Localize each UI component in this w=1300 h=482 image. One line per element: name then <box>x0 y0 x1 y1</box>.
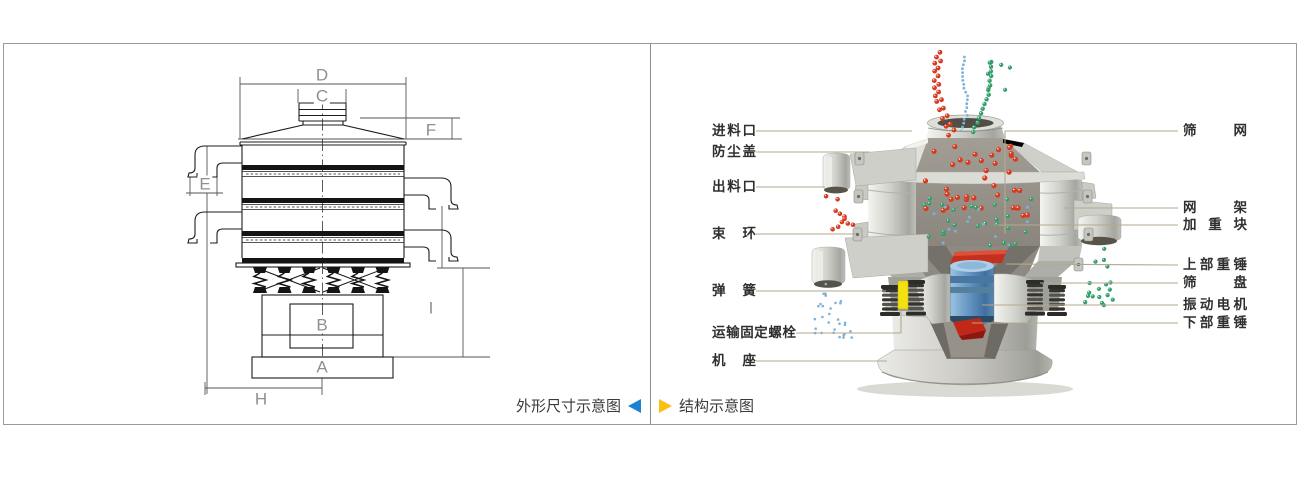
label-vibration-motor: 振动电机 <box>1183 297 1247 313</box>
dim-label-d: D <box>314 67 330 84</box>
dim-label-e: E <box>197 176 212 193</box>
feed-inlet-collar <box>926 115 1005 138</box>
dim-label-i: I <box>427 300 436 317</box>
springs-drawing <box>253 267 390 293</box>
dim-label-h: H <box>253 391 269 408</box>
clamp-bands <box>242 165 404 263</box>
machine-illustration <box>812 115 1121 397</box>
dim-label-f: F <box>424 122 438 139</box>
label-dust-cover: 防尘盖 <box>712 144 756 160</box>
transport-bolt-highlight <box>898 281 908 309</box>
dim-label-c: C <box>314 88 330 105</box>
dim-label-a: A <box>314 359 329 376</box>
vibration-motor <box>949 260 995 325</box>
label-feed-inlet: 进料口 <box>712 123 756 139</box>
label-sieve-tray: 筛盘 <box>1183 275 1247 291</box>
right-duct <box>1074 200 1121 245</box>
screenshot-root: D C F E B A H I 进料口 防尘盖 出料口 束环 弹簧 运输固定螺栓… <box>0 0 1300 482</box>
caption-left-panel: 外形尺寸示意图 <box>516 397 641 414</box>
caption-right-text: 结构示意图 <box>679 395 754 416</box>
label-machine-base: 机座 <box>712 353 756 369</box>
machine-outline <box>188 103 458 378</box>
label-weight-block: 加重块 <box>1183 217 1247 233</box>
right-arrow-icon <box>659 399 672 413</box>
label-lower-hammer: 下部重锤 <box>1183 315 1247 331</box>
label-screen-mesh: 筛网 <box>1183 123 1247 139</box>
label-mesh-frame: 网架 <box>1183 200 1247 216</box>
left-arrow-icon <box>628 399 641 413</box>
label-transport-bolt: 运输固定螺栓 <box>712 325 796 341</box>
label-spring: 弹簧 <box>712 283 756 299</box>
label-upper-hammer: 上部重锤 <box>1183 257 1247 273</box>
caption-left-text: 外形尺寸示意图 <box>516 395 621 416</box>
label-clamp-ring: 束环 <box>712 226 756 242</box>
dim-label-b: B <box>314 317 329 334</box>
label-discharge-outlet: 出料口 <box>712 179 756 195</box>
caption-right-panel: 结构示意图 <box>659 397 754 414</box>
